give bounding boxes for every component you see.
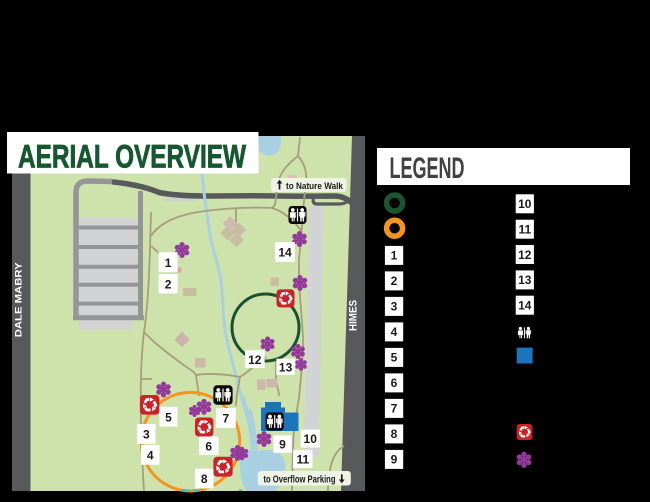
svg-text:9: 9 [279, 438, 286, 452]
svg-text:8: 8 [391, 427, 398, 441]
svg-text:7: 7 [391, 402, 398, 416]
svg-text:LEGEND: LEGEND [390, 152, 465, 185]
svg-text:14: 14 [278, 246, 292, 260]
svg-text:4: 4 [147, 449, 154, 463]
svg-text:7: 7 [223, 412, 230, 426]
svg-text:2: 2 [165, 278, 172, 292]
svg-text:12: 12 [518, 248, 532, 262]
svg-text:13: 13 [279, 361, 293, 375]
svg-text:9: 9 [391, 453, 398, 467]
svg-text:3: 3 [143, 428, 150, 442]
svg-text:10: 10 [304, 432, 318, 446]
svg-text:1: 1 [391, 249, 398, 263]
svg-text:6: 6 [205, 439, 212, 453]
svg-text:to Nature Walk: to Nature Walk [286, 181, 344, 192]
svg-text:13: 13 [518, 273, 532, 287]
svg-text:10: 10 [518, 197, 532, 211]
svg-text:1: 1 [165, 256, 172, 270]
svg-text:5: 5 [165, 410, 172, 424]
svg-text:DALE MABRY: DALE MABRY [14, 262, 25, 338]
svg-text:AERIAL OVERVIEW: AERIAL OVERVIEW [18, 139, 247, 175]
svg-text:12: 12 [248, 353, 262, 367]
svg-text:2: 2 [391, 274, 398, 288]
svg-text:11: 11 [296, 453, 309, 467]
svg-text:14: 14 [518, 299, 532, 313]
svg-text:5: 5 [391, 351, 398, 365]
svg-text:to Overflow Parking: to Overflow Parking [264, 474, 336, 485]
svg-text:6: 6 [391, 376, 398, 390]
svg-text:8: 8 [201, 472, 208, 486]
svg-text:4: 4 [391, 325, 398, 339]
svg-text:11: 11 [518, 223, 531, 237]
svg-text:HIMES: HIMES [348, 300, 360, 331]
svg-text:3: 3 [391, 300, 398, 314]
